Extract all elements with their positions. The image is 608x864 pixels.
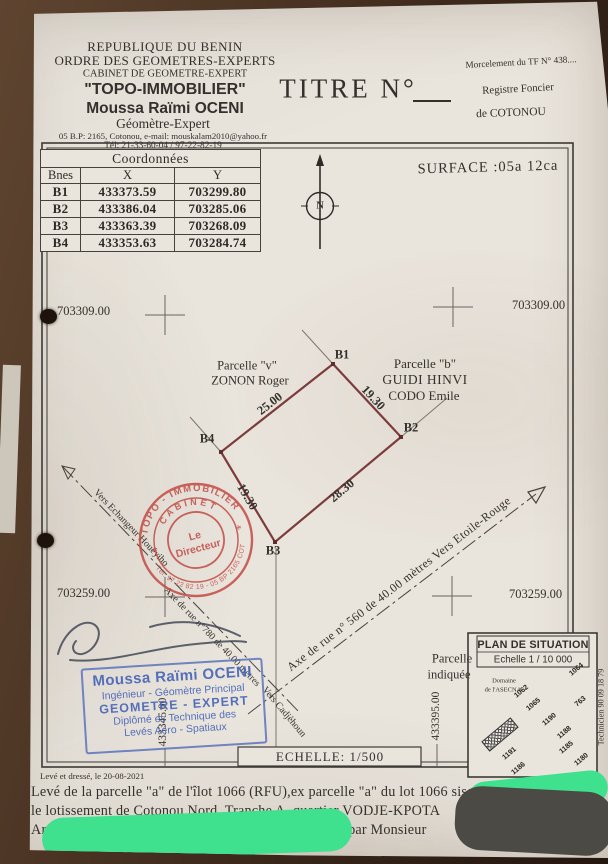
blue-rect-stamp: Moussa Raïmi OCENI Ingénieur - Géomètre … — [81, 658, 268, 755]
survey-document-paper: REPUBLIQUE DU BENIN ORDRE DES GEOMETRES-… — [0, 0, 608, 864]
punch-hole-bottom — [37, 533, 54, 548]
dark-redaction-blob — [453, 785, 608, 857]
punch-hole-top — [40, 309, 57, 324]
underlying-sheet-edge — [0, 365, 21, 534]
